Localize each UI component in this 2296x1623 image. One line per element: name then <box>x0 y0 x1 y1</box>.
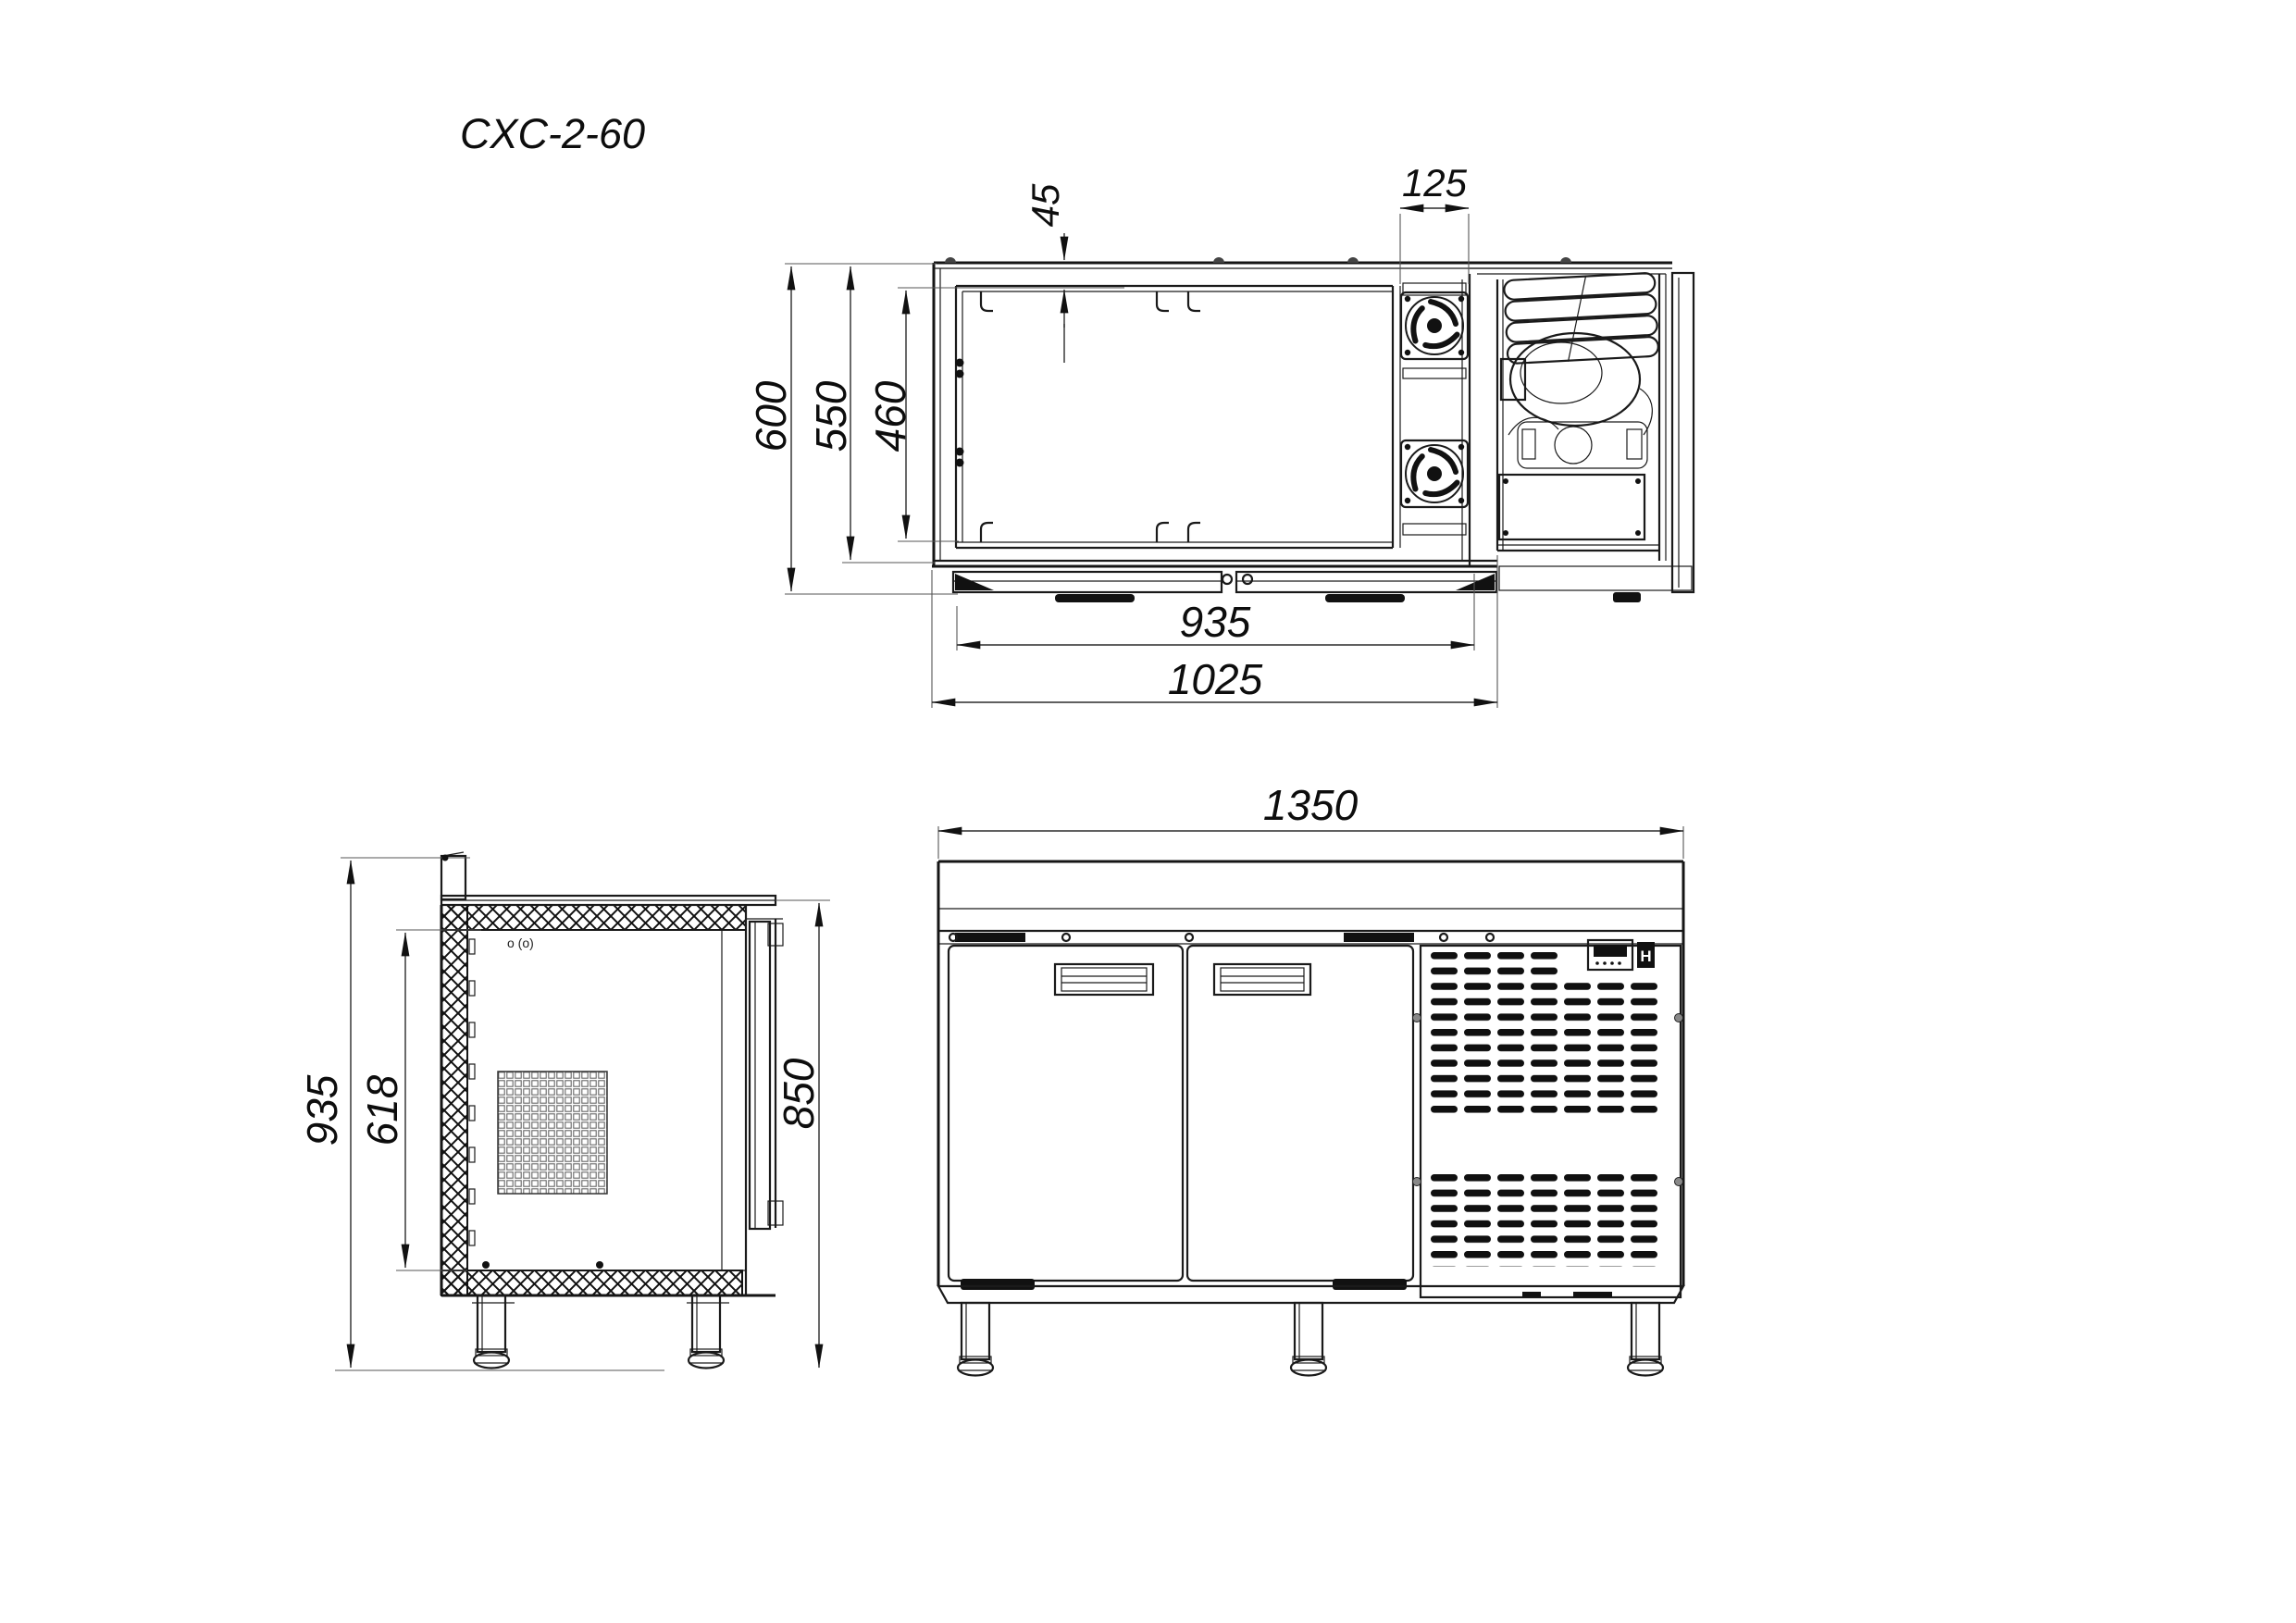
sensor-symbol: o (o) <box>507 935 534 950</box>
shelf-hook <box>1157 291 1169 311</box>
dim-fan-bay-width: 125 <box>1402 161 1468 204</box>
screw-bump <box>1347 257 1359 263</box>
front-leg <box>1628 1303 1663 1376</box>
dim-overall-height: 935 <box>298 1074 346 1146</box>
dim-interior-height: 618 <box>358 1074 406 1146</box>
temperature-controller <box>1588 940 1632 970</box>
evaporator-fan-icon <box>1401 292 1468 359</box>
compressor <box>1501 333 1640 426</box>
side-view: o (o) 935 <box>298 852 830 1370</box>
page-title: CXC-2-60 <box>460 110 645 157</box>
condenser-coil <box>1504 272 1659 365</box>
side-overhang-panel <box>1672 273 1694 592</box>
refrigerant-piping <box>1508 389 1652 468</box>
dim-wall-thickness: 45 <box>1024 183 1067 227</box>
dim-overall-width: 1350 <box>1263 781 1359 829</box>
switch-label: H <box>1640 948 1651 965</box>
left-door <box>949 946 1183 1290</box>
dim-refrigerated-section-width: 1025 <box>1168 655 1263 703</box>
shelf-hook <box>981 523 993 542</box>
worktop <box>441 852 776 905</box>
left-door-handle <box>1055 964 1153 995</box>
screw-bump <box>1213 257 1224 263</box>
side-body <box>441 905 776 1295</box>
controller-display <box>1594 945 1627 957</box>
evaporator-perforated-panel <box>498 1072 607 1194</box>
screw-bump <box>945 257 956 263</box>
dim-worktop-height: 850 <box>775 1058 823 1129</box>
front-leg <box>958 1303 993 1376</box>
dim-body-depth: 550 <box>807 380 855 452</box>
left-door-bottom-hinge <box>961 1279 1035 1290</box>
base-tab <box>1613 592 1641 602</box>
right-door-handle <box>1214 964 1310 995</box>
door-hinge-rail <box>949 933 1494 942</box>
side-interior: o (o) <box>469 935 607 1245</box>
shelf-hook <box>1188 291 1200 311</box>
right-door-bottom-hinge <box>1333 1279 1407 1290</box>
technical-drawing: CXC-2-60 <box>0 0 2296 1623</box>
dim-overall-depth: 600 <box>747 380 795 452</box>
front-view-dimensions: 1350 <box>938 781 1683 859</box>
top-view: 600 550 460 45 125 935 1025 <box>747 161 1694 708</box>
drawing-sheet: CXC-2-60 <box>0 0 2296 1623</box>
evaporator-fan-icon <box>1401 440 1468 507</box>
evaporator-fan-bay <box>1393 274 1470 566</box>
side-legs <box>472 1295 729 1369</box>
front-base <box>938 1286 1683 1376</box>
right-door <box>1187 946 1413 1290</box>
shelf-hook <box>1157 523 1169 542</box>
front-view: H 1350 <box>938 781 1683 1376</box>
shelf-hook <box>1188 523 1200 542</box>
switch-box: H <box>1637 942 1655 968</box>
shelf-rail-slots <box>469 939 475 1245</box>
dim-door-front-width: 935 <box>1180 598 1251 646</box>
machine-compartment <box>1470 268 1692 602</box>
dim-interior-depth: 460 <box>866 380 914 452</box>
electrical-box <box>1499 475 1644 539</box>
top-view-dimensions: 600 550 460 45 125 935 1025 <box>747 161 1497 708</box>
ventilation-grille: H <box>1413 940 1683 1297</box>
shelf-hook <box>981 291 993 311</box>
screw-bump <box>1560 257 1571 263</box>
top-view-interior <box>956 286 1394 548</box>
front-leg <box>1291 1303 1326 1376</box>
